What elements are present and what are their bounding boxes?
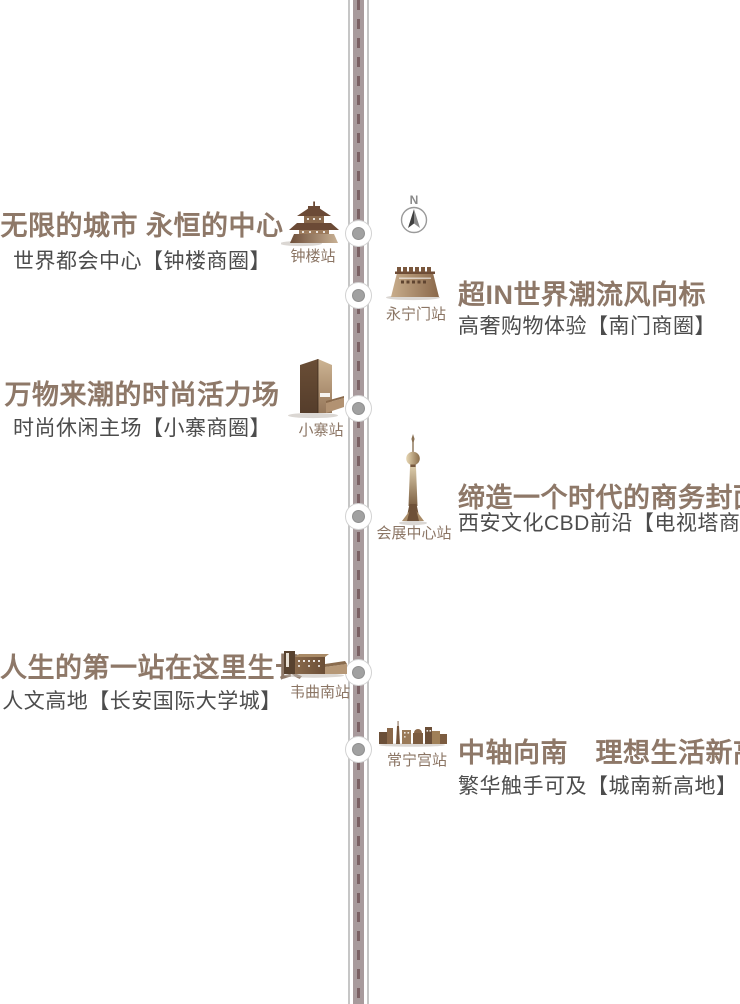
bell-tower-icon xyxy=(281,199,347,247)
tv-tower-icon xyxy=(394,434,432,528)
station-dot-core xyxy=(352,289,365,302)
station-label-zhonglou: 钟楼站 xyxy=(281,245,345,266)
station-dot-core xyxy=(352,227,365,240)
city-gate-icon xyxy=(381,257,449,301)
station-dot-core xyxy=(352,743,365,756)
station-dot-core xyxy=(352,510,365,523)
road-edge-left xyxy=(348,0,350,1004)
station-label-yongningmen: 永宁门站 xyxy=(379,303,453,324)
station-dot-zhonglou xyxy=(345,220,372,247)
campus-icon xyxy=(281,644,351,680)
metro-line-map: N 无限的城市 永恒的中心 世界都会中心【钟楼商圈】 钟楼站 xyxy=(0,0,740,1004)
metro-line-road xyxy=(348,0,369,1004)
section6-headline: 中轴向南 理想生活新高地 xyxy=(458,737,740,769)
road-edge-right xyxy=(367,0,369,1004)
section5-subline: 人文高地【长安国际大学城】 xyxy=(0,689,284,715)
section4-headline: 缔造一个时代的商务封面 xyxy=(458,482,740,514)
section6-subline: 繁华触手可及【城南新高地】 xyxy=(458,774,738,800)
station-label-xiaozhai: 小寨站 xyxy=(290,419,352,440)
section3-headline: 万物来潮的时尚活力场 xyxy=(0,379,284,411)
compass-icon xyxy=(399,205,429,235)
station-dot-yongningmen xyxy=(345,282,372,309)
station-dot-xiaozhai xyxy=(345,395,372,422)
section1-headline: 无限的城市 永恒的中心 xyxy=(0,210,284,242)
station-dot-core xyxy=(352,402,365,415)
section2-headline: 超IN世界潮流风向标 xyxy=(458,279,706,311)
road-asphalt xyxy=(353,0,364,1004)
station-dot-core xyxy=(352,666,365,679)
section5-headline: 人生的第一站在这里生长 xyxy=(0,652,284,684)
section2-subline: 高奢购物体验【南门商圈】 xyxy=(458,314,716,340)
station-label-weiqunan: 韦曲南站 xyxy=(288,681,352,702)
station-dot-changninggong xyxy=(345,736,372,763)
modern-tower-icon xyxy=(286,351,348,421)
section4-subline: 西安文化CBD前沿【电视塔商圈】 xyxy=(458,511,740,537)
station-dot-huizhanzhongxin xyxy=(345,503,372,530)
skyline-icon xyxy=(376,718,450,748)
section3-subline: 时尚休闲主场【小寨商圈】 xyxy=(0,416,284,442)
station-label-changninggong: 常宁宫站 xyxy=(382,749,452,770)
road-center-dash xyxy=(357,0,360,1004)
section1-subline: 世界都会中心【钟楼商圈】 xyxy=(0,249,284,275)
